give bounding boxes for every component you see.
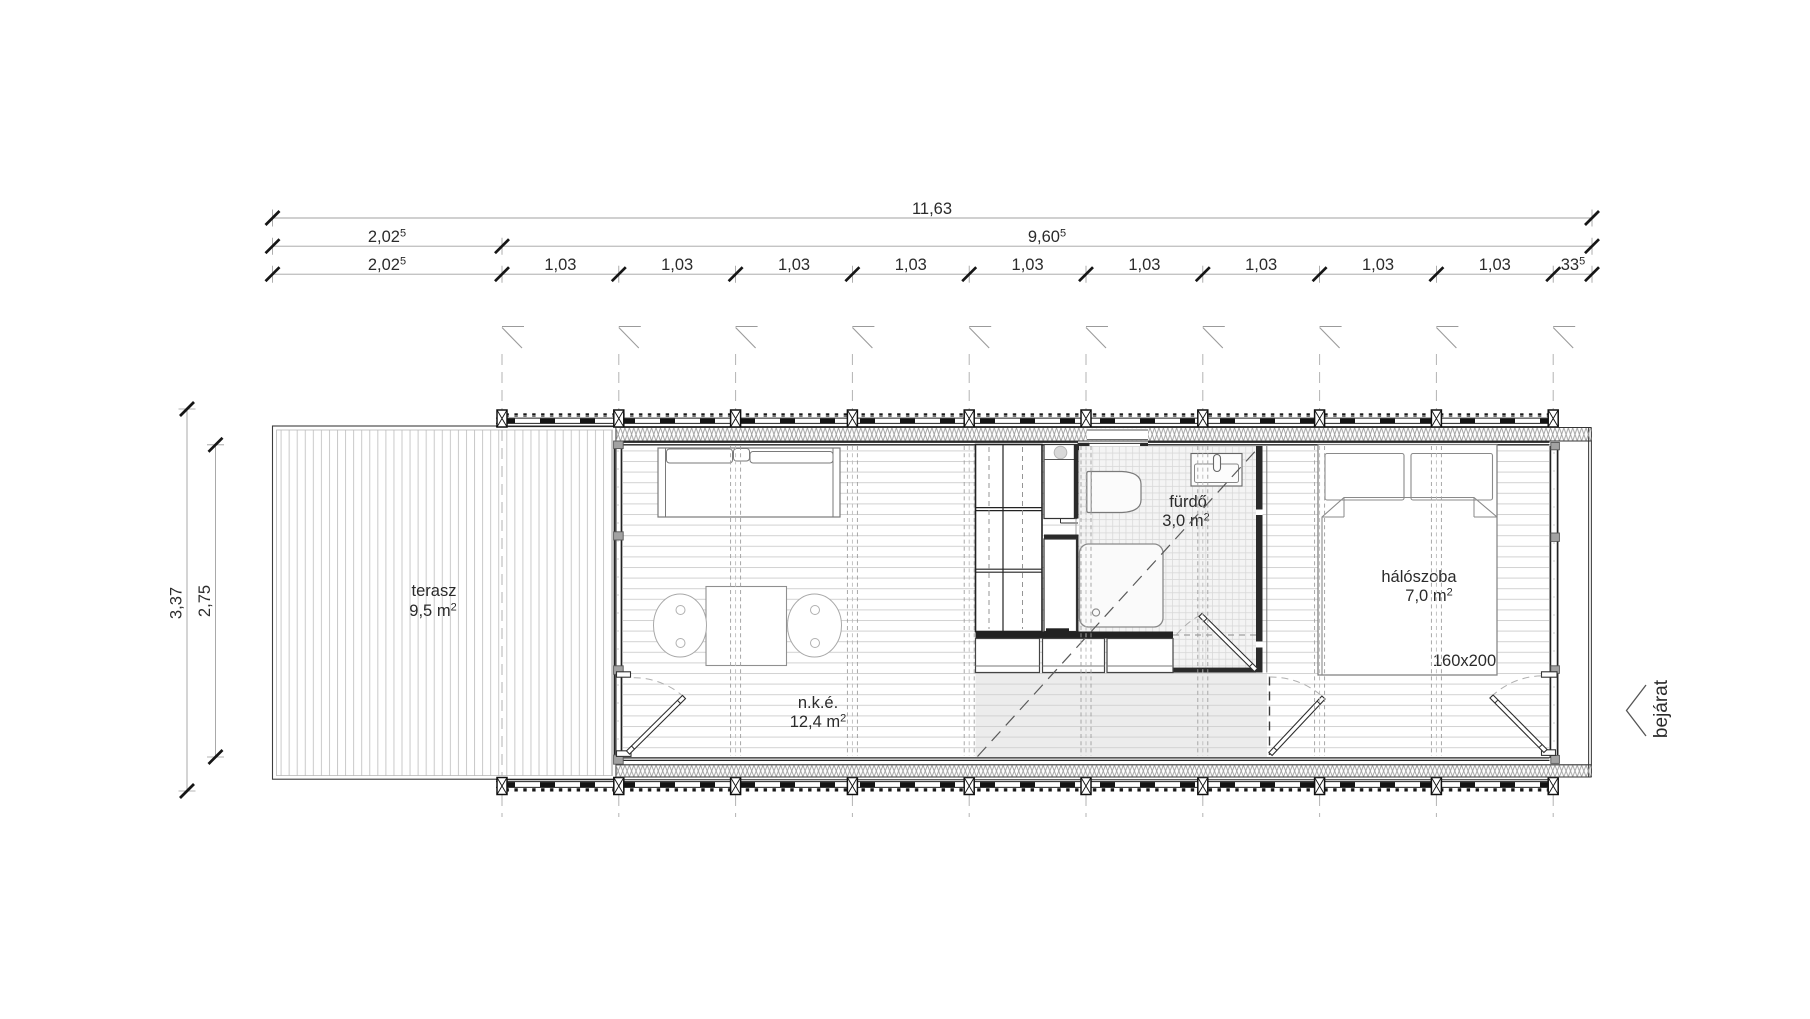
svg-text:1,03: 1,03 xyxy=(778,256,810,274)
svg-text:1,03: 1,03 xyxy=(661,256,693,274)
svg-text:1,03: 1,03 xyxy=(544,256,576,274)
svg-text:9,5 m2: 9,5 m2 xyxy=(409,602,456,621)
svg-text:12,4 m2: 12,4 m2 xyxy=(790,713,847,732)
svg-text:3,37: 3,37 xyxy=(168,587,186,619)
svg-text:n.k.é.: n.k.é. xyxy=(798,694,838,712)
svg-text:1,03: 1,03 xyxy=(1128,256,1160,274)
svg-text:11,63: 11,63 xyxy=(912,200,952,218)
svg-text:1,03: 1,03 xyxy=(1479,256,1511,274)
svg-text:2,75: 2,75 xyxy=(196,585,214,617)
svg-text:bejárat: bejárat xyxy=(1651,679,1672,738)
svg-text:hálószoba: hálószoba xyxy=(1381,568,1457,586)
svg-text:7,0 m2: 7,0 m2 xyxy=(1405,587,1452,606)
svg-text:terasz: terasz xyxy=(412,582,457,600)
svg-text:160x200: 160x200 xyxy=(1433,652,1496,670)
svg-text:1,03: 1,03 xyxy=(1012,256,1044,274)
svg-text:1,03: 1,03 xyxy=(1245,256,1277,274)
svg-text:fürdő: fürdő xyxy=(1169,493,1207,511)
svg-text:1,03: 1,03 xyxy=(1362,256,1394,274)
svg-text:1,03: 1,03 xyxy=(895,256,927,274)
